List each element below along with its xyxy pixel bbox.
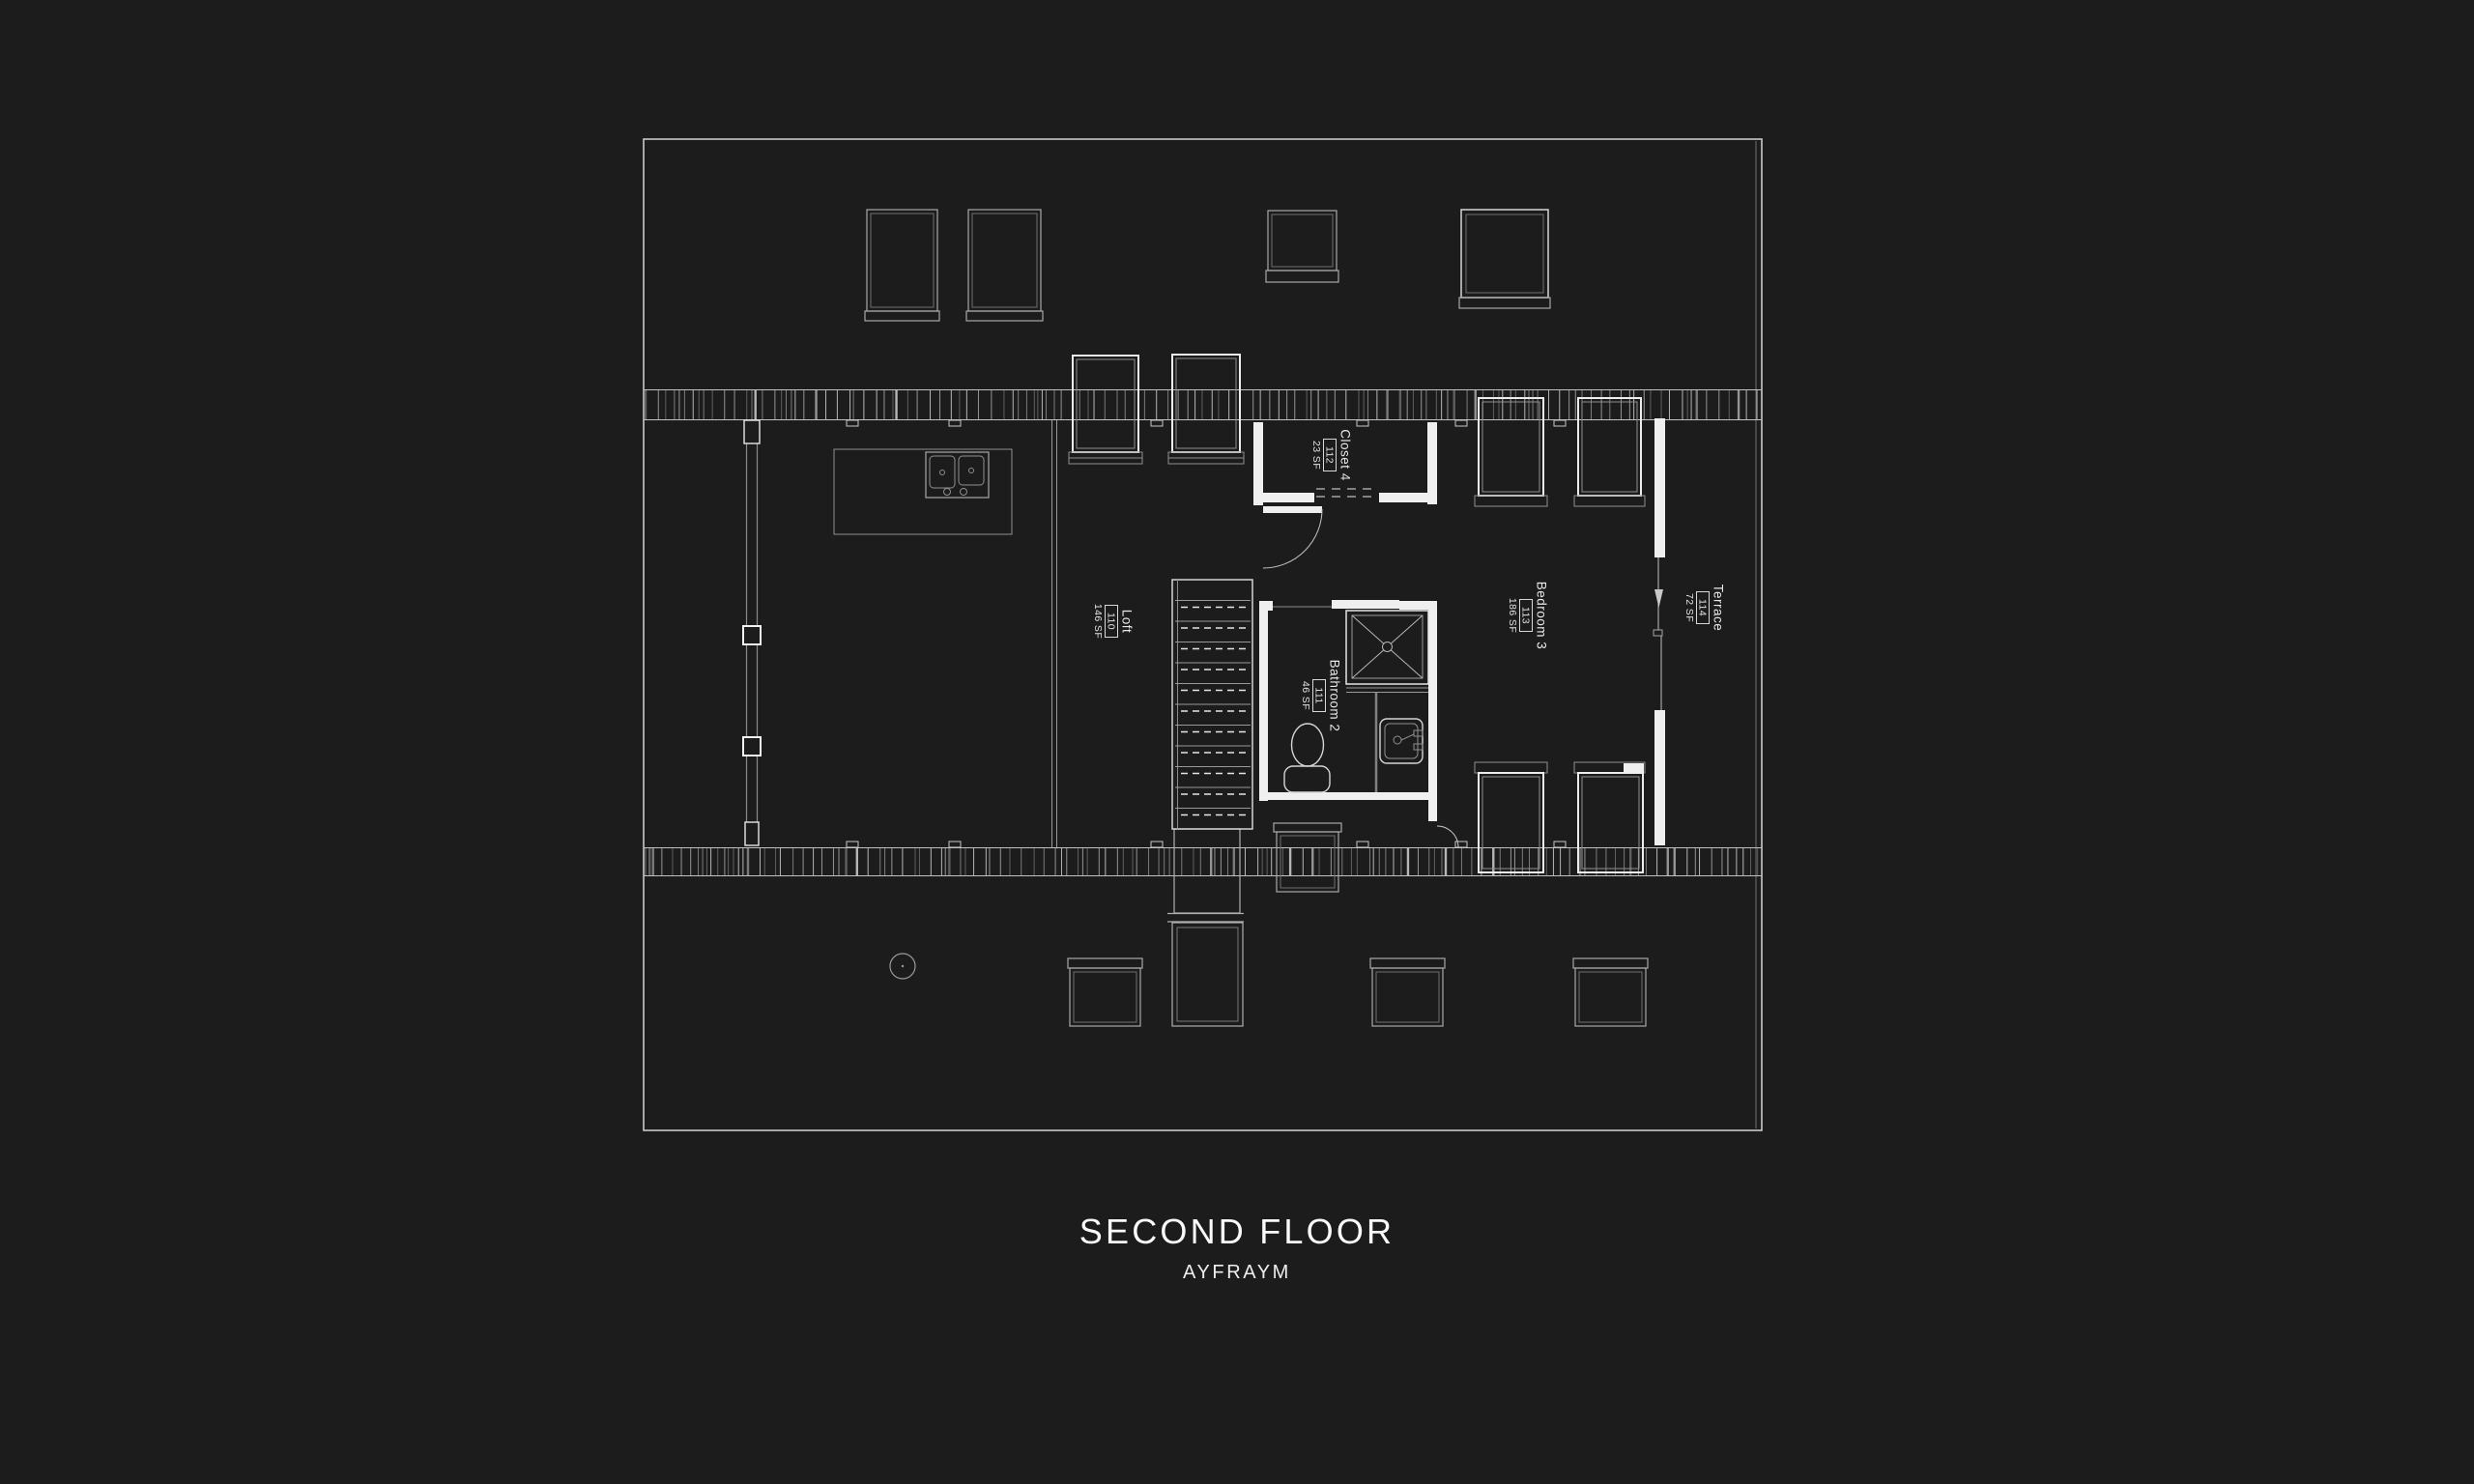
svg-text:72 SF: 72 SF: [1683, 593, 1695, 622]
floor-plan: Loft 110 146 SF Closet 4 112 23 SF Bathr…: [0, 0, 2474, 1484]
bedroom-wall-stub: [1624, 763, 1644, 774]
sliding-door: [1332, 600, 1399, 609]
svg-text:46 SF: 46 SF: [1300, 681, 1311, 710]
svg-text:Bedroom 3: Bedroom 3: [1535, 582, 1549, 650]
svg-text:111: 111: [1313, 687, 1325, 703]
svg-text:114: 114: [1697, 599, 1709, 616]
svg-text:23 SF: 23 SF: [1310, 441, 1322, 470]
svg-text:112: 112: [1324, 446, 1336, 464]
svg-text:Bathroom 2: Bathroom 2: [1328, 660, 1342, 732]
svg-text:110: 110: [1106, 613, 1117, 630]
svg-text:Terrace: Terrace: [1712, 585, 1726, 632]
svg-text:Closet 4: Closet 4: [1338, 429, 1353, 481]
svg-text:146 SF: 146 SF: [1092, 604, 1104, 639]
svg-text:186 SF: 186 SF: [1507, 598, 1518, 633]
page-subtitle: AYFRAYM: [1183, 1262, 1291, 1283]
svg-text:Loft: Loft: [1120, 610, 1135, 634]
page-title: SECOND FLOOR: [1079, 1212, 1395, 1251]
svg-text:113: 113: [1520, 607, 1532, 624]
